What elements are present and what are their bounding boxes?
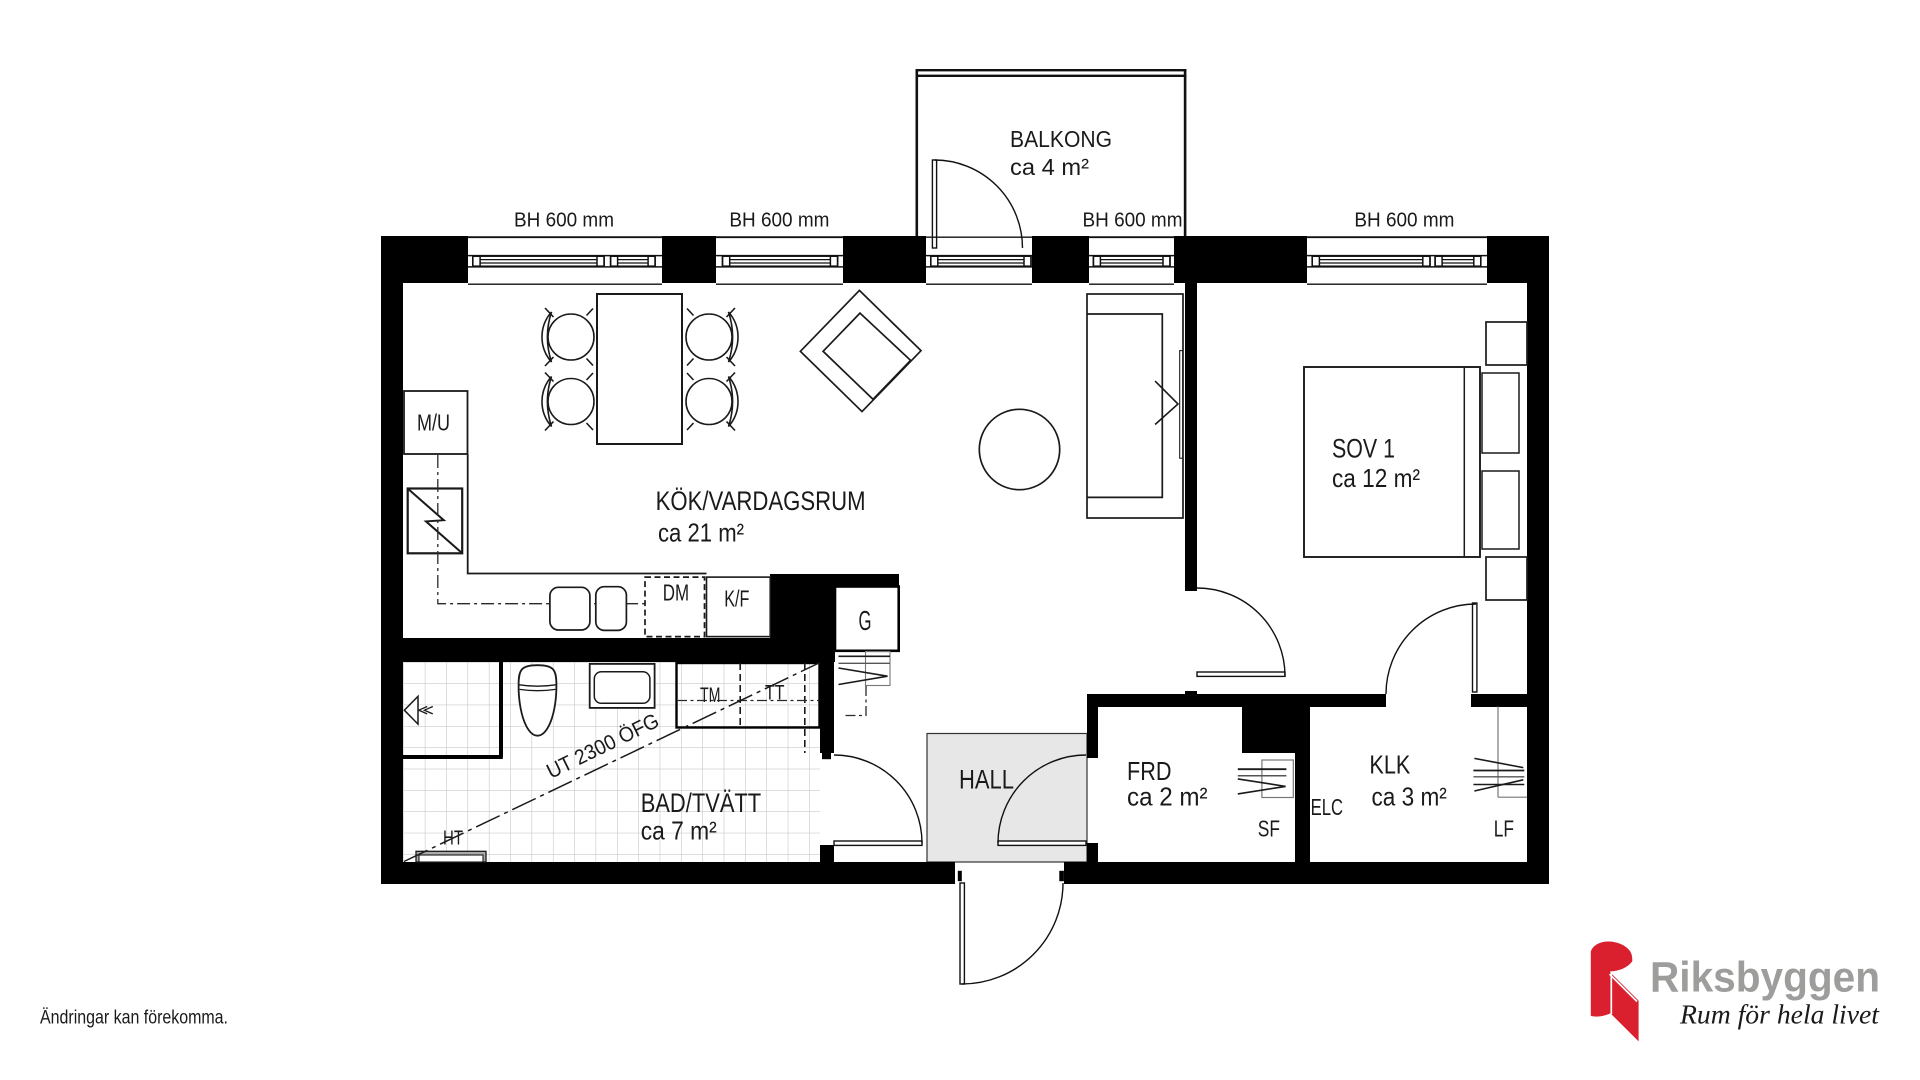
svg-text:Riksbyggen: Riksbyggen xyxy=(1650,954,1880,1002)
svg-text:M/U: M/U xyxy=(417,410,450,436)
svg-text:TM: TM xyxy=(700,684,721,707)
svg-text:ca 2 m²: ca 2 m² xyxy=(1127,782,1208,812)
svg-text:ca 21 m²: ca 21 m² xyxy=(658,518,744,548)
svg-text:ca 4 m²: ca 4 m² xyxy=(1010,154,1089,180)
svg-text:BH 600 mm: BH 600 mm xyxy=(1354,210,1454,232)
svg-text:Ändringar kan förekomma.: Ändringar kan förekomma. xyxy=(40,1008,228,1029)
svg-text:LF: LF xyxy=(1494,816,1514,842)
svg-text:ca 12 m²: ca 12 m² xyxy=(1332,463,1420,493)
svg-text:ca 7 m²: ca 7 m² xyxy=(641,816,717,846)
svg-text:ca 3 m²: ca 3 m² xyxy=(1372,782,1448,812)
svg-text:BALKONG: BALKONG xyxy=(1010,126,1112,152)
svg-text:KLK: KLK xyxy=(1369,750,1411,780)
svg-text:SF: SF xyxy=(1258,815,1280,841)
svg-text:G: G xyxy=(859,605,872,636)
svg-text:TT: TT xyxy=(765,682,785,705)
svg-text:Rum för hela livet: Rum för hela livet xyxy=(1679,1000,1881,1030)
svg-text:HALL: HALL xyxy=(959,765,1014,795)
svg-text:ELC: ELC xyxy=(1311,794,1343,820)
svg-text:BH 600 mm: BH 600 mm xyxy=(514,210,614,232)
svg-text:SOV 1: SOV 1 xyxy=(1332,434,1395,464)
svg-text:BH 600 mm: BH 600 mm xyxy=(729,210,829,232)
svg-text:K/F: K/F xyxy=(724,586,749,612)
svg-text:HT: HT xyxy=(443,828,463,850)
svg-text:BH 600 mm: BH 600 mm xyxy=(1083,210,1183,232)
svg-text:BAD/TVÄTT: BAD/TVÄTT xyxy=(641,788,762,818)
svg-text:DM: DM xyxy=(663,579,689,605)
svg-text:KÖK/VARDAGSRUM: KÖK/VARDAGSRUM xyxy=(656,486,866,516)
